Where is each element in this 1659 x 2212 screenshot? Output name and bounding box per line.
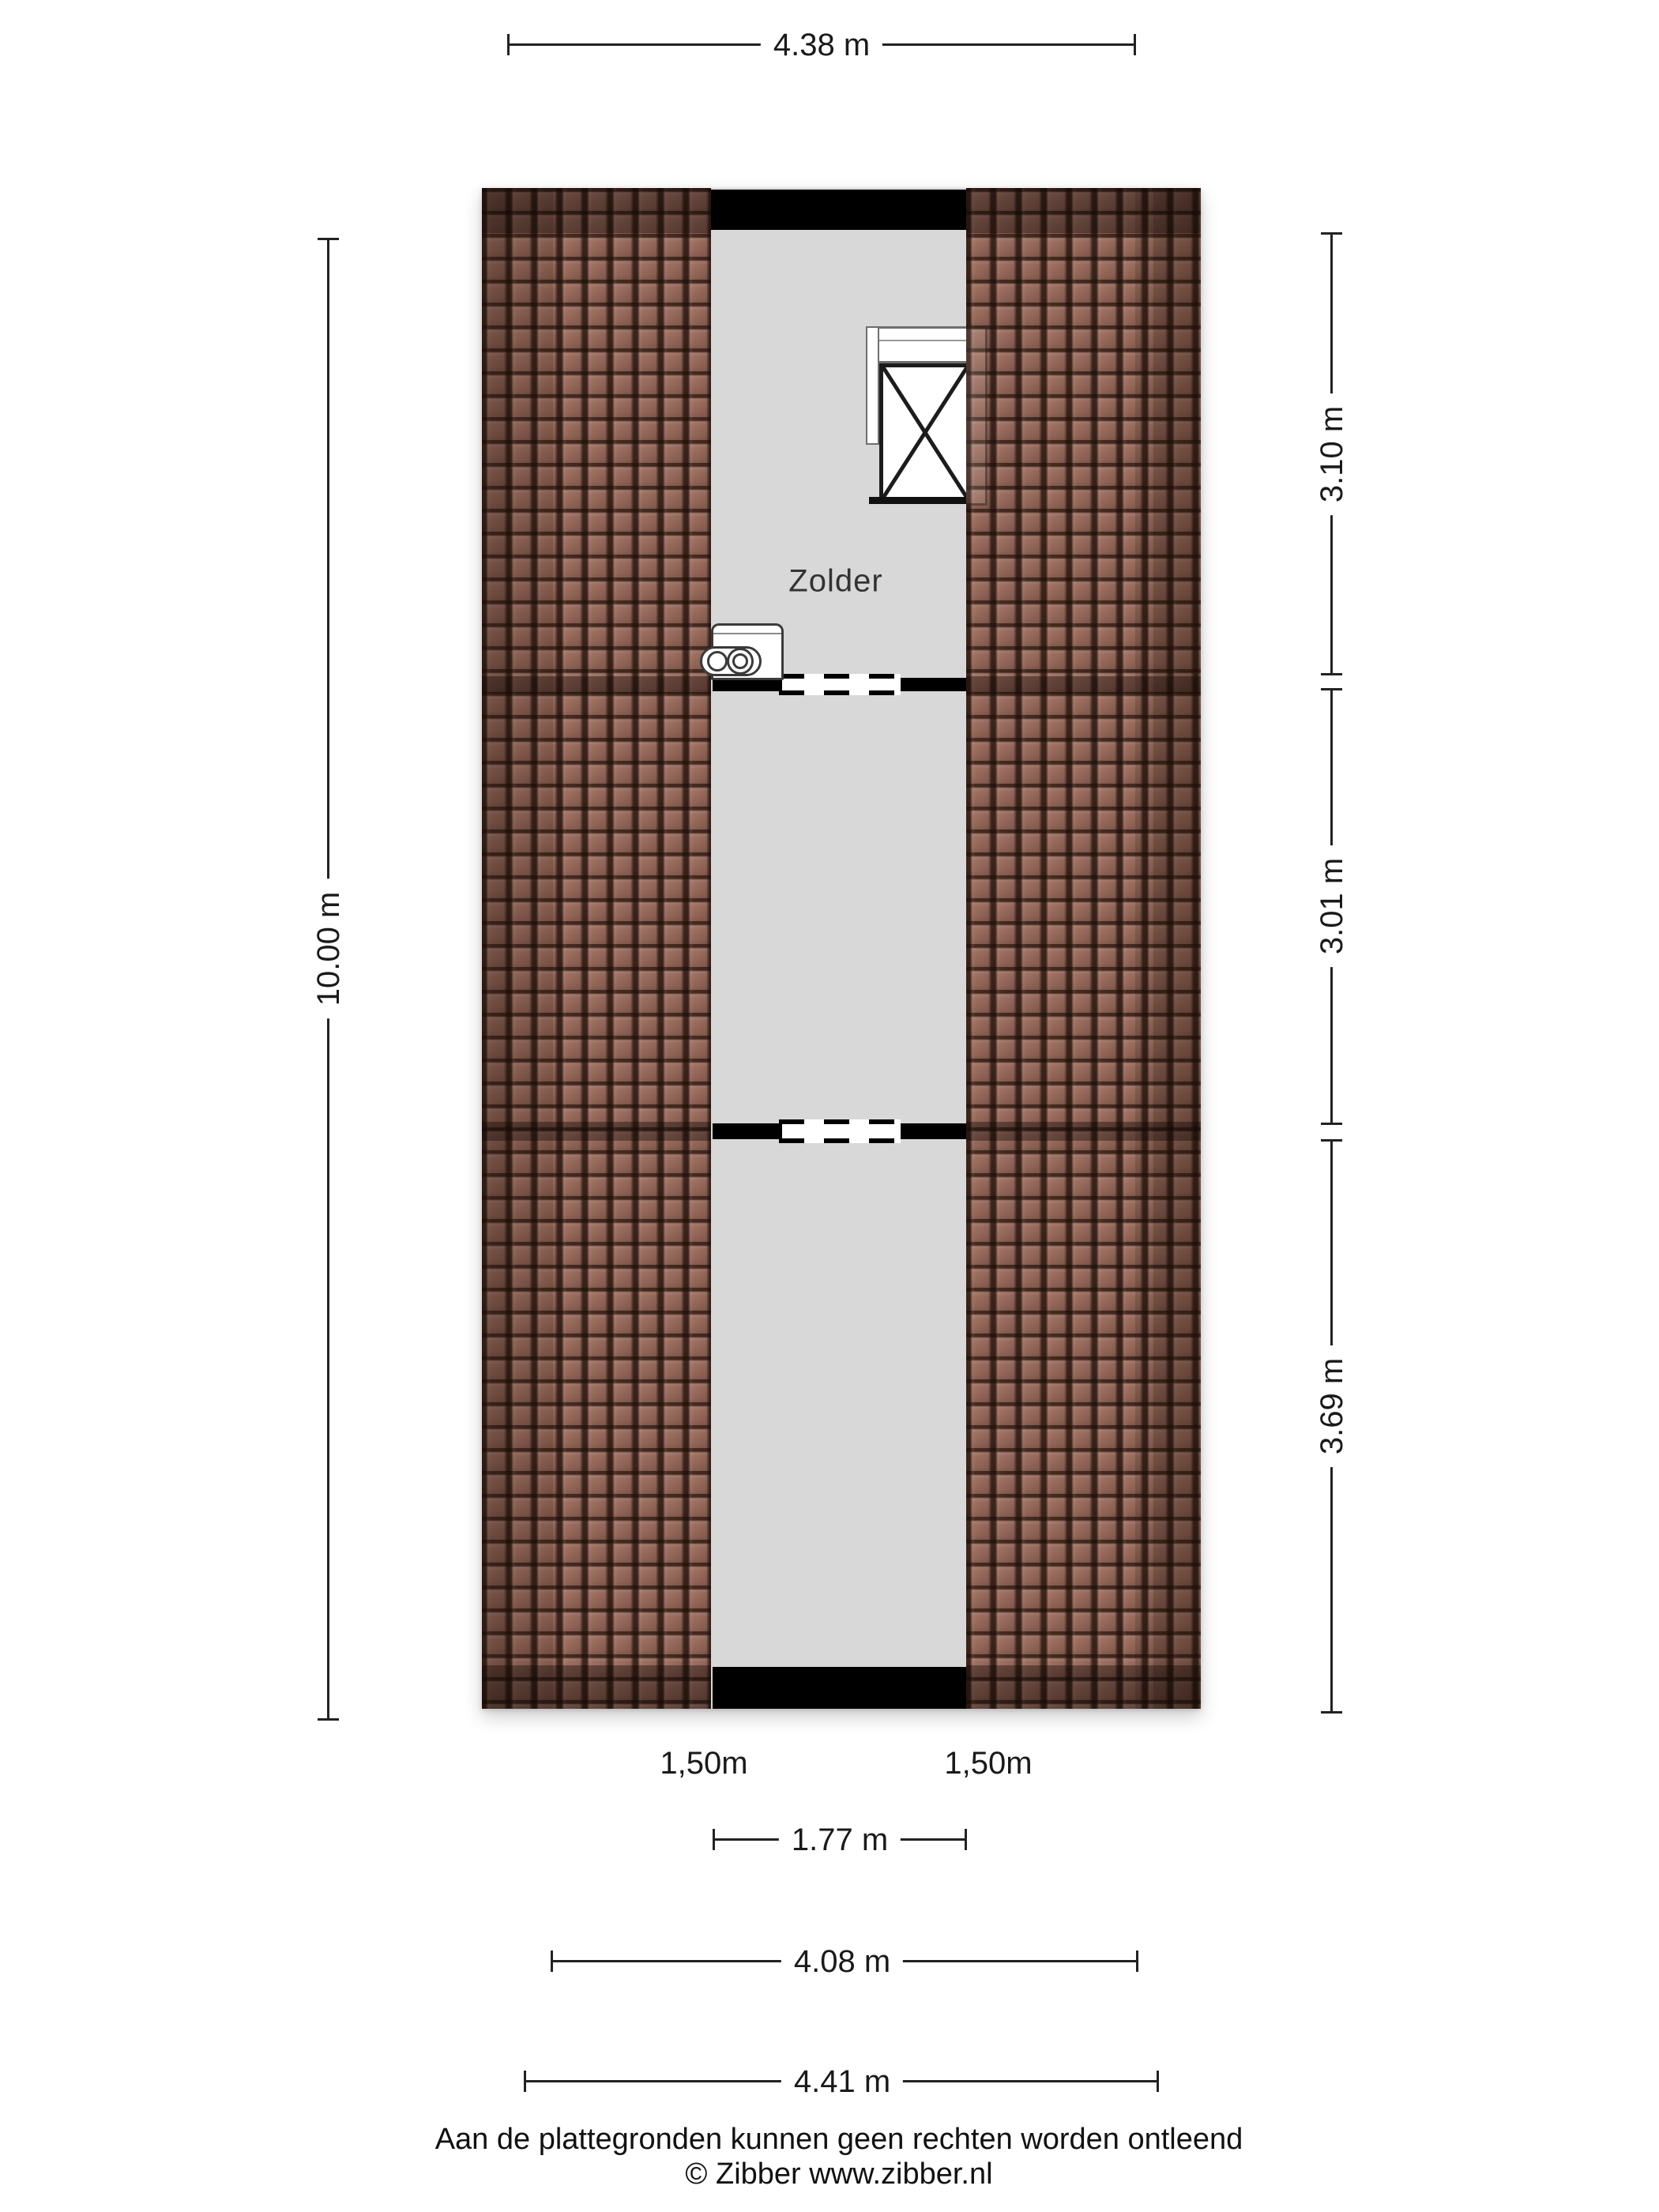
wall-opening-1: [782, 674, 901, 695]
dimension-outer-width: 4.41 m: [781, 2060, 903, 2104]
dimension-floor-width: 4.08 m: [781, 1939, 903, 1984]
boiler-pipes: [700, 646, 762, 676]
room-label: Zolder: [788, 564, 882, 600]
roof-overhang-left: [482, 188, 510, 1709]
wall-bottom: [713, 1667, 966, 1709]
floor-plan: [482, 188, 1201, 1709]
roof-shade-top-right: [966, 188, 1201, 233]
window-cross-icon: [883, 367, 967, 498]
dimension-right-top: 3.10 m: [1310, 393, 1354, 515]
roof-window-frame-left: [866, 326, 879, 445]
wall-divider-2: [713, 1123, 966, 1139]
floorplan-page: Zolder 4.38 m 10.00 m 3.10 m 3.01 m 3.69…: [0, 0, 1659, 2212]
roof-shade-top-left: [482, 188, 711, 233]
dimension-right-bottom: 3.69 m: [1310, 1345, 1354, 1467]
pipe-circle-small: [707, 651, 728, 671]
roof-wall-zone-right: [1135, 188, 1153, 1709]
roof-window-ghost-outline: [966, 326, 987, 506]
clearance-label-left: 1,50m: [660, 1747, 747, 1779]
roof-window-symbol: [879, 363, 971, 502]
clearance-label-right: 1,50m: [944, 1747, 1032, 1779]
dimension-right-middle: 3.01 m: [1310, 845, 1354, 967]
roof-shade-bottom-left: [482, 1665, 711, 1709]
roof-shade-divider2-left: [482, 1122, 711, 1141]
roof-slope-left: [482, 188, 711, 1709]
roof-shade-divider1-left: [482, 676, 711, 694]
roof-slope-right: [966, 188, 1201, 1709]
roof-window-sill-bar: [869, 497, 972, 504]
roof-overhang-right: [1153, 188, 1201, 1709]
wall-top: [711, 190, 966, 230]
roof-shade-bottom-right: [966, 1665, 1201, 1709]
roof-wall-zone-left: [510, 188, 553, 1709]
dimension-left-height: 10.00 m: [307, 879, 351, 1019]
footer-disclaimer: Aan de plattegronden kunnen geen rechten…: [9, 2124, 1659, 2157]
dimension-top-width: 4.38 m: [761, 23, 882, 67]
roof-shade-divider1-right: [966, 676, 1201, 694]
footer-copyright: © Zibber www.zibber.nl: [9, 2158, 1659, 2191]
roof-shade-divider2-right: [966, 1122, 1201, 1141]
dimension-inner-width: 1.77 m: [779, 1818, 901, 1862]
pipe-circle-inner: [732, 653, 748, 669]
wall-opening-2: [782, 1119, 901, 1143]
